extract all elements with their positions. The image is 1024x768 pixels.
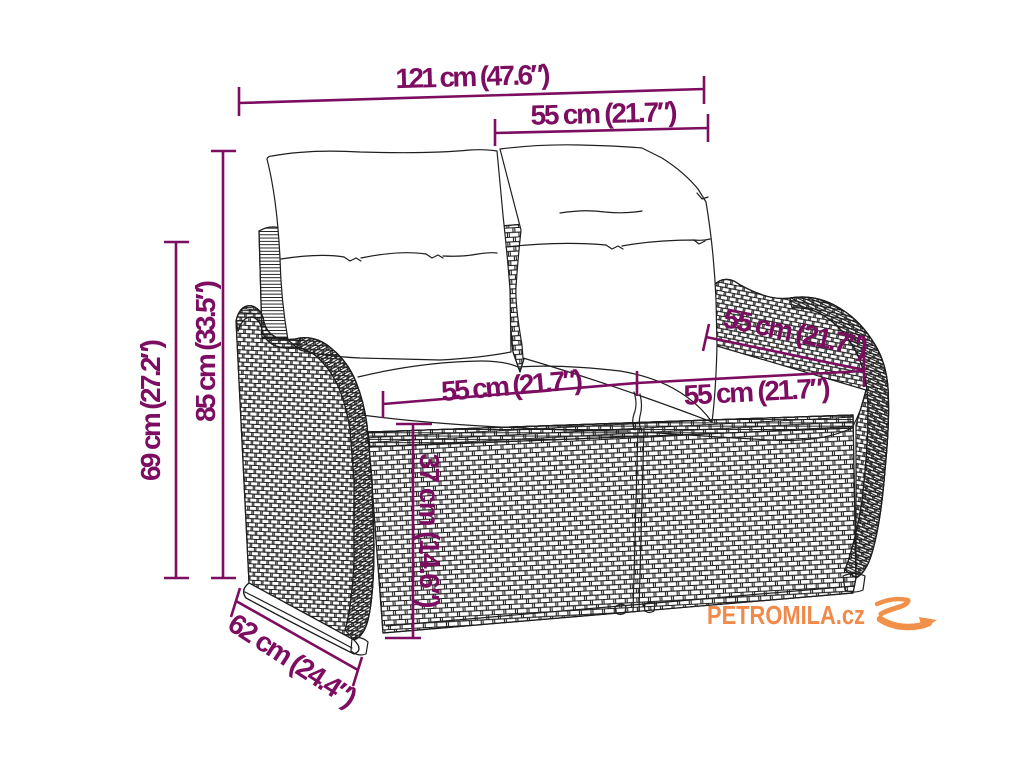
svg-text:37 cm (14.6″): 37 cm (14.6″) xyxy=(414,454,445,609)
svg-text:69 cm (27.2″): 69 cm (27.2″) xyxy=(135,339,166,481)
svg-text:PETROMILA.cz: PETROMILA.cz xyxy=(707,602,865,630)
svg-text:121 cm (47.6″): 121 cm (47.6″) xyxy=(395,59,551,94)
svg-text:55 cm (21.7″): 55 cm (21.7″) xyxy=(530,96,678,131)
svg-text:85 cm (33.5″): 85 cm (33.5″) xyxy=(190,280,221,422)
